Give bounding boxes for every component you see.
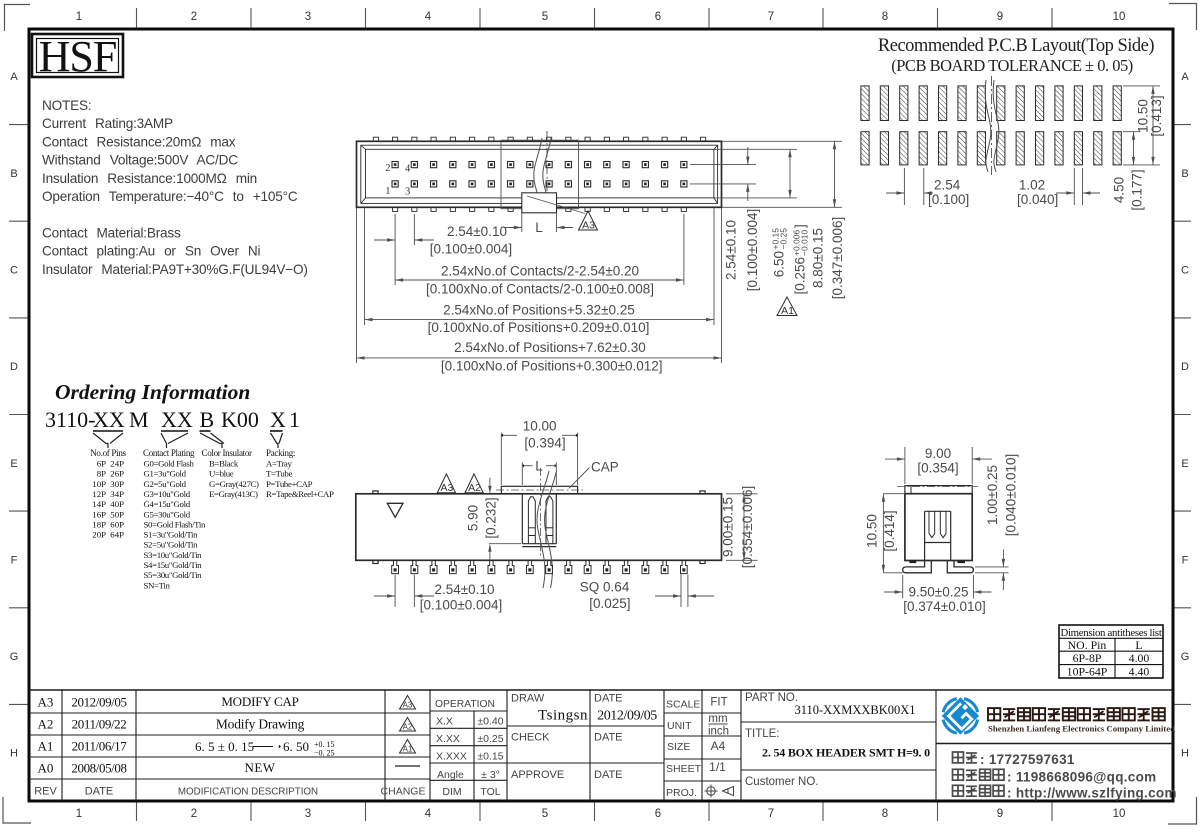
svg-text:2011/09/22: 2011/09/22 xyxy=(72,717,127,732)
svg-text:G0=Gold Flash: G0=Gold Flash xyxy=(144,459,195,469)
svg-text:2012/09/05: 2012/09/05 xyxy=(71,695,126,710)
svg-text:OPERATION: OPERATION xyxy=(435,699,495,710)
svg-text:[0.025]: [0.025] xyxy=(589,596,630,611)
svg-text:D: D xyxy=(1181,361,1189,373)
svg-text:9.00±0.15: 9.00±0.15 xyxy=(721,497,736,557)
svg-text:G4=15u"Gold: G4=15u"Gold xyxy=(144,499,191,509)
svg-text:[0.394]: [0.394] xyxy=(524,435,565,450)
svg-text:G5=30u"Gold: G5=30u"Gold xyxy=(144,509,191,519)
svg-text:5.90: 5.90 xyxy=(466,505,481,531)
svg-text:A: A xyxy=(1181,71,1189,83)
svg-text:X.XXX: X.XXX xyxy=(436,750,467,762)
svg-text:TITLE:: TITLE: xyxy=(745,728,780,740)
svg-text:8P: 8P xyxy=(97,469,106,479)
svg-text:±0.15: ±0.15 xyxy=(477,750,503,762)
svg-text:XX: XX xyxy=(93,407,125,432)
svg-text:7: 7 xyxy=(768,808,774,820)
svg-text:−0.25: −0.25 xyxy=(779,228,789,250)
svg-text:L: L xyxy=(1135,638,1142,652)
svg-text:6: 6 xyxy=(655,11,661,23)
svg-text:−0.010: −0.010 xyxy=(800,229,810,256)
svg-text:: 1198668096@qq.com: : 1198668096@qq.com xyxy=(1007,769,1156,784)
svg-text:[0.100xNo.of Positions+0.300±0: [0.100xNo.of Positions+0.300±0.012] xyxy=(441,359,663,374)
svg-text:Tsingsn: Tsingsn xyxy=(538,708,588,724)
svg-text:2.54±0.10: 2.54±0.10 xyxy=(447,224,507,239)
svg-text:18P: 18P xyxy=(92,519,106,529)
svg-text:F: F xyxy=(11,555,18,567)
svg-text:Current Rating:3AMP: Current Rating:3AMP xyxy=(42,116,173,131)
svg-text:2: 2 xyxy=(385,163,390,174)
svg-text:(PCB BOARD TOLERANCE ± 0. 05): (PCB BOARD TOLERANCE ± 0. 05) xyxy=(891,56,1132,75)
svg-text:14P: 14P xyxy=(92,499,106,509)
svg-text:12P: 12P xyxy=(92,489,106,499)
svg-text:C: C xyxy=(10,265,18,277)
svg-text:DIM: DIM xyxy=(442,786,461,798)
svg-text:[0.100±0.004]: [0.100±0.004] xyxy=(420,598,502,613)
svg-text:[0.100±0.004]: [0.100±0.004] xyxy=(430,242,512,257)
svg-text:NEW: NEW xyxy=(244,760,275,775)
svg-text:26P: 26P xyxy=(110,469,124,479)
svg-text:R=Tape&Reel+CAP: R=Tape&Reel+CAP xyxy=(266,489,334,499)
svg-text:24P: 24P xyxy=(110,459,124,469)
svg-text:2008/05/08: 2008/05/08 xyxy=(71,761,126,776)
svg-text:[0.100xNo.of Contacts/2-0.100±: [0.100xNo.of Contacts/2-0.100±0.008] xyxy=(426,282,654,297)
svg-text:S3=10u"Gold/Tin: S3=10u"Gold/Tin xyxy=(144,550,203,560)
svg-text:E: E xyxy=(1181,458,1188,470)
svg-text:±0.25: ±0.25 xyxy=(477,733,503,745)
svg-text:B: B xyxy=(1181,168,1188,180)
svg-text:Operation Temperature:−40°C to: Operation Temperature:−40°C to +105°C xyxy=(42,189,298,204)
svg-text:G1=3u"Gold: G1=3u"Gold xyxy=(144,469,187,479)
svg-text:Ordering Information: Ordering Information xyxy=(55,380,250,404)
svg-text:2. 54 BOX HEADER SMT H=9. 0: 2. 54 BOX HEADER SMT H=9. 0 xyxy=(762,746,930,760)
svg-text:30P: 30P xyxy=(110,479,124,489)
svg-text:X.X: X.X xyxy=(436,716,453,728)
svg-text:Withstand Voltage:500V AC/DC: Withstand Voltage:500V AC/DC xyxy=(42,153,238,168)
svg-text:C: C xyxy=(1181,265,1189,277)
svg-text:P=Tube+CAP: P=Tube+CAP xyxy=(266,479,313,489)
svg-text:S2=5u"Gold/Tin: S2=5u"Gold/Tin xyxy=(144,540,199,550)
svg-text:9.50±0.25: 9.50±0.25 xyxy=(909,585,969,600)
svg-text:T=Tube: T=Tube xyxy=(266,469,292,479)
svg-text:G3=10u"Gold: G3=10u"Gold xyxy=(144,489,191,499)
svg-text:D: D xyxy=(10,361,18,373)
svg-text:NOTES:: NOTES: xyxy=(42,98,91,113)
svg-text:6. 50: 6. 50 xyxy=(283,739,309,754)
svg-text:9: 9 xyxy=(997,11,1003,23)
svg-text:Contact Resistance:20mΩ max: Contact Resistance:20mΩ max xyxy=(42,134,236,149)
svg-text:No.of Pins: No.of Pins xyxy=(90,448,126,458)
svg-text:DRAW: DRAW xyxy=(511,693,545,705)
svg-text:FIT: FIT xyxy=(710,697,727,709)
svg-text:6P: 6P xyxy=(97,459,106,469)
svg-text:8.80±0.15: 8.80±0.15 xyxy=(811,228,826,288)
svg-text:G: G xyxy=(1181,651,1190,663)
svg-text:U=blue: U=blue xyxy=(209,469,234,479)
svg-text:A3: A3 xyxy=(403,701,413,710)
svg-text:±0.40: ±0.40 xyxy=(477,716,503,728)
svg-text:[0.413]: [0.413] xyxy=(1149,95,1164,136)
svg-text:S0=Gold Flash/Tin: S0=Gold Flash/Tin xyxy=(144,519,206,529)
svg-text:NO. Pin: NO. Pin xyxy=(1068,638,1107,652)
svg-text:G: G xyxy=(10,651,19,663)
svg-text:A1: A1 xyxy=(781,305,794,317)
svg-text:± 3°: ± 3° xyxy=(481,769,500,781)
svg-text:6.50: 6.50 xyxy=(772,251,787,277)
svg-text:1: 1 xyxy=(289,407,300,432)
svg-text:A1: A1 xyxy=(403,745,413,754)
svg-text:Color Insulator: Color Insulator xyxy=(202,448,253,458)
svg-text:L: L xyxy=(535,458,543,473)
svg-text:2.54±0.10: 2.54±0.10 xyxy=(724,220,739,280)
svg-text:MODIFICATION DESCRIPTION: MODIFICATION DESCRIPTION xyxy=(178,787,318,798)
svg-text:7: 7 xyxy=(768,11,774,23)
svg-text:A4: A4 xyxy=(711,739,726,753)
svg-text:2.54±0.10: 2.54±0.10 xyxy=(435,582,495,597)
svg-text:A3: A3 xyxy=(440,482,453,494)
svg-text:CHECK: CHECK xyxy=(511,732,550,744)
svg-text:H: H xyxy=(10,748,18,760)
svg-text:G=Gray(427C): G=Gray(427C) xyxy=(209,479,259,489)
svg-text:A0: A0 xyxy=(38,761,54,776)
svg-text:A: A xyxy=(10,71,18,83)
svg-text:PROJ.: PROJ. xyxy=(666,787,697,799)
svg-text:G2=5u"Gold: G2=5u"Gold xyxy=(144,479,187,489)
svg-text:2: 2 xyxy=(191,11,197,23)
svg-text:[0.414]: [0.414] xyxy=(882,510,897,551)
svg-text:[0.374±0.010]: [0.374±0.010] xyxy=(903,599,985,614)
svg-text:DATE: DATE xyxy=(85,786,114,798)
svg-text:3110-XXMXXBK00X1: 3110-XXMXXBK00X1 xyxy=(794,703,915,717)
svg-text:3: 3 xyxy=(305,808,311,820)
svg-text:A3: A3 xyxy=(582,220,595,232)
svg-text:B: B xyxy=(10,168,17,180)
svg-text:1: 1 xyxy=(76,808,82,820)
svg-text:[0.354]: [0.354] xyxy=(917,461,958,476)
svg-text:9.00: 9.00 xyxy=(925,446,951,461)
svg-text:A2: A2 xyxy=(403,723,413,732)
svg-text:2.54xNo.of Positions+5.32±0.25: 2.54xNo.of Positions+5.32±0.25 xyxy=(443,302,635,317)
svg-text:Contact Plating: Contact Plating xyxy=(143,448,195,458)
svg-text:4: 4 xyxy=(405,164,411,175)
svg-text:A=Tray: A=Tray xyxy=(266,459,292,469)
svg-text:2.54: 2.54 xyxy=(934,178,961,193)
svg-text:B: B xyxy=(200,407,215,432)
svg-text:SCALE: SCALE xyxy=(666,699,700,711)
svg-text:34P: 34P xyxy=(110,489,124,499)
svg-text:−0. 25: −0. 25 xyxy=(314,749,335,758)
svg-text:A3: A3 xyxy=(38,695,54,710)
svg-text:Insulation Resistance:1000MΩ m: Insulation Resistance:1000MΩ min xyxy=(42,171,257,186)
svg-text:[0.347±0.006]: [0.347±0.006] xyxy=(830,217,845,299)
svg-text:A1: A1 xyxy=(38,739,54,754)
svg-text:REV: REV xyxy=(34,786,57,798)
svg-text:9: 9 xyxy=(997,808,1003,820)
svg-text:10.50: 10.50 xyxy=(865,514,880,548)
svg-text:DATE: DATE xyxy=(594,732,623,744)
svg-text:4: 4 xyxy=(425,11,432,23)
svg-text:64P: 64P xyxy=(110,530,124,540)
svg-text:2: 2 xyxy=(191,808,197,820)
svg-text:SIZE: SIZE xyxy=(667,741,690,753)
svg-text:60P: 60P xyxy=(110,519,124,529)
svg-text:SHEET: SHEET xyxy=(666,763,702,775)
svg-text:3110-: 3110- xyxy=(45,407,96,432)
svg-text:: 17727597631: : 17727597631 xyxy=(980,752,1075,767)
svg-text:[0.177]: [0.177] xyxy=(1130,169,1145,210)
svg-text:X.XX: X.XX xyxy=(436,733,460,745)
svg-text:A2: A2 xyxy=(38,717,54,732)
svg-text:4.50: 4.50 xyxy=(1112,177,1127,203)
svg-text:10.00: 10.00 xyxy=(523,419,557,434)
svg-text:3: 3 xyxy=(405,187,410,198)
svg-text:10: 10 xyxy=(1113,808,1126,820)
svg-text:Customer NO.: Customer NO. xyxy=(745,776,819,788)
svg-text:XX: XX xyxy=(161,407,193,432)
svg-text:CHANGE: CHANGE xyxy=(381,786,426,798)
svg-text:SQ 0.64: SQ 0.64 xyxy=(580,580,630,595)
svg-text:1/1: 1/1 xyxy=(709,760,726,774)
svg-text:Angle: Angle xyxy=(437,769,464,781)
svg-text:DATE: DATE xyxy=(594,693,623,705)
svg-text:1: 1 xyxy=(76,11,82,23)
svg-text:5: 5 xyxy=(542,808,548,820)
svg-text:PART NO.: PART NO. xyxy=(745,692,798,704)
svg-text:[0.100xNo.of Positions+0.209±0: [0.100xNo.of Positions+0.209±0.010] xyxy=(428,320,650,335)
svg-text:16P: 16P xyxy=(92,509,106,519)
svg-text:2012/09/05: 2012/09/05 xyxy=(597,709,657,724)
svg-text:CAP: CAP xyxy=(591,460,619,475)
svg-text:10: 10 xyxy=(1113,11,1126,23)
svg-text:E=Gray(413C): E=Gray(413C) xyxy=(209,489,258,499)
svg-text:Contact Material:Brass: Contact Material:Brass xyxy=(42,226,181,241)
svg-text:20P: 20P xyxy=(92,530,106,540)
svg-text:4.00: 4.00 xyxy=(1129,651,1150,665)
svg-text:SN=Tin: SN=Tin xyxy=(144,580,171,590)
svg-text:3: 3 xyxy=(305,11,311,23)
svg-text:[0.100±0.004]: [0.100±0.004] xyxy=(745,209,760,291)
svg-text:2011/06/17: 2011/06/17 xyxy=(72,739,128,754)
svg-text:mm: mm xyxy=(708,713,727,725)
svg-text:[0.040]: [0.040] xyxy=(1017,192,1058,207)
svg-text:2.54xNo.of Positions+7.62±0.30: 2.54xNo.of Positions+7.62±0.30 xyxy=(454,340,646,355)
svg-text:HSF: HSF xyxy=(39,32,117,81)
svg-text:Recommended P.C.B Layout(Top S: Recommended P.C.B Layout(Top Side) xyxy=(878,36,1154,56)
svg-text:[0.232]: [0.232] xyxy=(484,497,499,538)
svg-text:MODIFY CAP: MODIFY CAP xyxy=(221,694,298,709)
svg-text:8: 8 xyxy=(882,11,888,23)
svg-text:inch: inch xyxy=(708,726,729,738)
svg-text:10P-64P: 10P-64P xyxy=(1067,664,1108,678)
svg-text:8: 8 xyxy=(882,808,888,820)
svg-text:: http://www.szlfying.com: : http://www.szlfying.com xyxy=(1007,785,1177,800)
svg-text:Insulator Material:PA9T+30%G.F: Insulator Material:PA9T+30%G.F(UL94V−O) xyxy=(42,262,308,277)
svg-text:1.02: 1.02 xyxy=(1019,178,1045,193)
svg-text:2.54xNo.of Contacts/2-2.54±0.2: 2.54xNo.of Contacts/2-2.54±0.20 xyxy=(441,264,639,279)
svg-text:X: X xyxy=(270,407,286,432)
svg-text:[0.256: [0.256 xyxy=(793,257,808,295)
svg-text:4.40: 4.40 xyxy=(1129,664,1150,678)
svg-text:6. 5 ± 0. 15: 6. 5 ± 0. 15 xyxy=(195,739,254,754)
svg-text:[0.100]: [0.100] xyxy=(928,192,969,207)
svg-text:]: ] xyxy=(793,224,808,228)
svg-text:6P-8P: 6P-8P xyxy=(1073,651,1102,665)
svg-text:10P: 10P xyxy=(92,479,106,489)
svg-text:[0.354±0.006]: [0.354±0.006] xyxy=(740,486,755,568)
svg-text:M: M xyxy=(129,407,149,432)
svg-text:Shenzhen Lianfeng Electronics: Shenzhen Lianfeng Electronics Company Li… xyxy=(988,724,1175,734)
svg-text:K00: K00 xyxy=(221,407,259,432)
svg-text:4: 4 xyxy=(425,808,432,820)
svg-text:B=Black: B=Black xyxy=(209,459,239,469)
svg-text:1.00±0.25: 1.00±0.25 xyxy=(985,465,1000,525)
svg-text:F: F xyxy=(1182,555,1189,567)
svg-text:Packing:: Packing: xyxy=(266,448,295,458)
svg-text:5: 5 xyxy=(542,11,548,23)
svg-text:S5=30u"Gold/Tin: S5=30u"Gold/Tin xyxy=(144,570,203,580)
svg-text:L: L xyxy=(535,220,543,235)
svg-text:S4=15u"Gold/Tin: S4=15u"Gold/Tin xyxy=(144,560,203,570)
svg-text:APPROVE: APPROVE xyxy=(511,769,564,781)
svg-text:6: 6 xyxy=(655,808,661,820)
svg-text:50P: 50P xyxy=(110,509,124,519)
svg-text:H: H xyxy=(1181,748,1189,760)
svg-text:S1=3u"Gold/Tin: S1=3u"Gold/Tin xyxy=(144,530,199,540)
svg-text:[0.040±0.010]: [0.040±0.010] xyxy=(1004,454,1019,536)
svg-text:DATE: DATE xyxy=(594,769,623,781)
svg-text:UNIT: UNIT xyxy=(667,720,692,732)
svg-text:A2: A2 xyxy=(468,482,481,494)
svg-text:Contact plating:Au or Sn Over: Contact plating:Au or Sn Over Ni xyxy=(42,244,260,259)
svg-text:1: 1 xyxy=(385,186,390,197)
svg-text:Modify Drawing: Modify Drawing xyxy=(216,717,305,732)
svg-text:40P: 40P xyxy=(110,499,124,509)
svg-text:TOL: TOL xyxy=(480,786,500,798)
svg-text:E: E xyxy=(10,458,17,470)
